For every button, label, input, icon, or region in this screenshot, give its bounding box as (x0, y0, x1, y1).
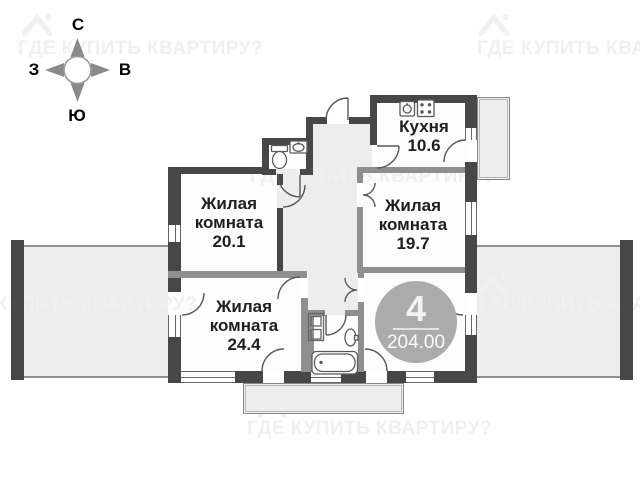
room-4-double-door-arc (345, 278, 357, 302)
compass-south-arrow (71, 83, 85, 102)
apartment-badge: 4 204.00 (375, 281, 457, 363)
compass-east-label: В (119, 60, 131, 80)
wc-sink-icon (290, 141, 307, 153)
bathtub-icon (312, 352, 358, 375)
vent-shaft-icon (309, 314, 324, 341)
compass-east-arrow (91, 63, 110, 77)
room-name: Жилая (169, 194, 289, 213)
room-name: Кухня (374, 117, 474, 136)
compass-south-label: Ю (68, 106, 86, 126)
badge-divider (393, 328, 439, 330)
floor-plan-page: ГДЕ КУПИТЬ КВАРТИРУ? ГДЕ КУПИТЬ КВАРТИРУ… (0, 0, 640, 480)
room-name: комната (184, 316, 304, 335)
badge-total-area: 204.00 (387, 333, 445, 353)
room-label-24-4: Жилая комната 24.4 (184, 297, 304, 354)
plan-overlay (0, 0, 640, 480)
room-area: 19.7 (353, 234, 473, 253)
room-area: 24.4 (184, 335, 304, 354)
room-label-20-1: Жилая комната 20.1 (169, 194, 289, 251)
room-area: 20.1 (169, 232, 289, 251)
room-label-19-7: Жилая комната 19.7 (353, 196, 473, 253)
entrance-door-arc (326, 98, 348, 120)
compass-circle (64, 57, 91, 84)
compass-north-arrow (71, 38, 85, 57)
bathroom-sink-icon (345, 329, 358, 346)
bottom-balcony-door-arc-right (365, 349, 387, 371)
bathroom-door-arc (326, 315, 346, 335)
toilet-icon (272, 146, 288, 169)
kitchen-sink-icon (400, 102, 415, 117)
room-name: комната (169, 213, 289, 232)
compass-west-arrow (45, 63, 64, 77)
compass-west-label: З (29, 60, 40, 80)
room-name: Жилая (184, 297, 304, 316)
badge-rooms-count: 4 (406, 292, 426, 326)
room-name: комната (353, 215, 473, 234)
compass-rose (45, 38, 110, 102)
room-24-4-door-arc (278, 277, 300, 299)
room-name: Жилая (353, 196, 473, 215)
kitchen-label: Кухня 10.6 (374, 117, 474, 155)
room-area: 10.6 (374, 136, 474, 155)
compass-north-label: С (72, 15, 84, 35)
stove-icon (418, 100, 435, 117)
